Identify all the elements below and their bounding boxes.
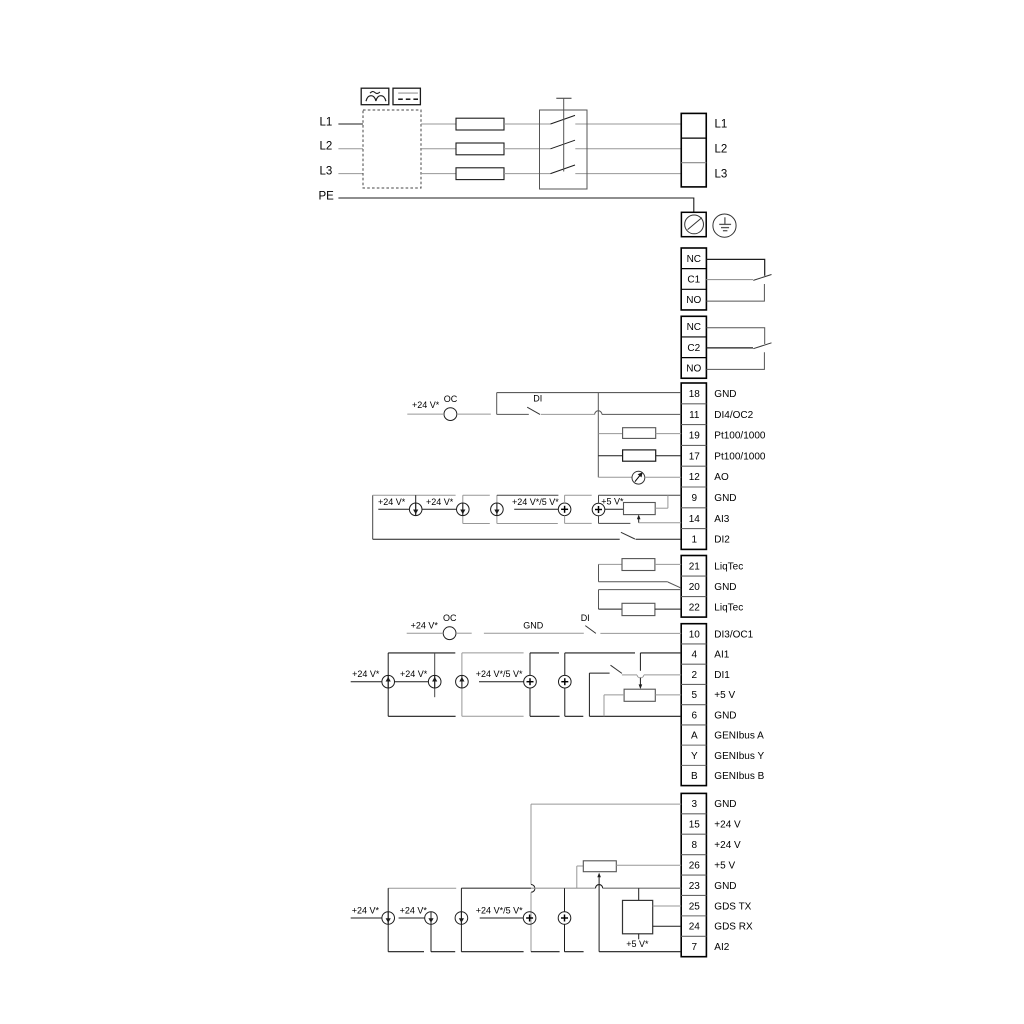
svg-text:10: 10 [689,629,701,640]
svg-text:26: 26 [689,860,701,871]
svg-text:Pt100/1000: Pt100/1000 [714,451,766,462]
svg-text:19: 19 [689,431,701,442]
svg-text:3: 3 [692,799,698,810]
svg-text:AO: AO [714,472,729,483]
svg-text:GND: GND [714,493,736,504]
svg-text:DI3/OC1: DI3/OC1 [714,629,753,640]
svg-text:+24 V*/5 V*: +24 V*/5 V* [512,497,559,507]
svg-text:NO: NO [686,364,701,375]
svg-text:+5 V*: +5 V* [601,497,624,507]
svg-text:L2: L2 [715,144,728,156]
svg-text:4: 4 [692,650,698,661]
svg-text:L3: L3 [715,169,728,181]
svg-text:C1: C1 [687,275,700,286]
svg-text:AI3: AI3 [714,514,729,525]
svg-text:GND: GND [714,389,736,400]
svg-text:B: B [691,771,698,782]
svg-text:GND: GND [523,621,544,631]
svg-text:DI: DI [581,613,590,623]
svg-text:NO: NO [686,295,701,306]
svg-text:15: 15 [689,820,701,831]
svg-text:GND: GND [714,582,736,593]
svg-text:LiqTec: LiqTec [714,561,743,572]
svg-text:+24 V*: +24 V* [426,497,454,507]
svg-text:+24 V*: +24 V* [412,400,440,410]
svg-text:5: 5 [692,690,698,701]
svg-text:GDS TX: GDS TX [714,901,751,912]
svg-text:21: 21 [689,561,701,572]
svg-text:+24 V*/5 V*: +24 V*/5 V* [476,669,523,679]
svg-text:GND: GND [714,799,736,810]
svg-text:+5 V*: +5 V* [626,939,649,949]
svg-text:GND: GND [714,710,736,721]
svg-text:22: 22 [689,602,701,613]
svg-text:L2: L2 [320,141,333,153]
svg-text:DI: DI [533,394,542,404]
svg-text:GENIbus A: GENIbus A [714,731,764,742]
svg-text:L1: L1 [320,117,333,129]
svg-text:AI1: AI1 [714,650,729,661]
svg-text:PE: PE [319,191,335,203]
svg-text:+24 V*: +24 V* [400,906,428,916]
svg-text:L3: L3 [320,165,333,177]
svg-text:+24 V*: +24 V* [378,497,406,507]
svg-text:L1: L1 [715,119,728,131]
svg-text:DI4/OC2: DI4/OC2 [714,410,753,421]
svg-text:2: 2 [692,670,698,681]
svg-text:DI2: DI2 [714,535,730,546]
svg-text:DI1: DI1 [714,670,730,681]
svg-text:9: 9 [692,493,698,504]
svg-text:LiqTec: LiqTec [714,602,743,613]
svg-text:AI2: AI2 [714,942,729,953]
svg-text:+5 V: +5 V [714,860,735,871]
svg-text:+24 V: +24 V [714,840,741,851]
svg-text:A: A [691,731,698,742]
svg-text:+24 V*: +24 V* [352,906,380,916]
svg-text:24: 24 [689,922,701,933]
svg-text:+5 V: +5 V [714,690,735,701]
svg-text:12: 12 [689,472,701,483]
svg-text:C2: C2 [687,343,700,354]
svg-text:25: 25 [689,901,701,912]
svg-text:+24 V*: +24 V* [352,669,380,679]
svg-text:OC: OC [444,394,458,404]
svg-text:+24 V*: +24 V* [400,669,428,679]
svg-text:+24 V*/5 V*: +24 V*/5 V* [476,906,523,916]
svg-text:17: 17 [689,451,701,462]
svg-text:GENIbus Y: GENIbus Y [714,751,764,762]
svg-text:14: 14 [689,514,701,525]
svg-text:Y: Y [691,751,698,762]
svg-text:GND: GND [714,881,736,892]
svg-text:NC: NC [687,254,701,265]
svg-text:6: 6 [692,710,698,721]
svg-text:11: 11 [689,410,700,421]
svg-text:OC: OC [443,613,457,623]
svg-text:NC: NC [687,322,701,333]
svg-text:18: 18 [689,389,701,400]
svg-text:1: 1 [692,535,698,546]
svg-text:7: 7 [692,942,698,953]
svg-text:+24 V*: +24 V* [411,621,439,631]
svg-text:8: 8 [692,840,698,851]
svg-text:Pt100/1000: Pt100/1000 [714,431,766,442]
svg-text:+24 V: +24 V [714,820,741,831]
svg-text:20: 20 [689,582,701,593]
svg-text:23: 23 [689,881,701,892]
svg-text:GENIbus B: GENIbus B [714,771,764,782]
svg-text:GDS RX: GDS RX [714,922,753,933]
